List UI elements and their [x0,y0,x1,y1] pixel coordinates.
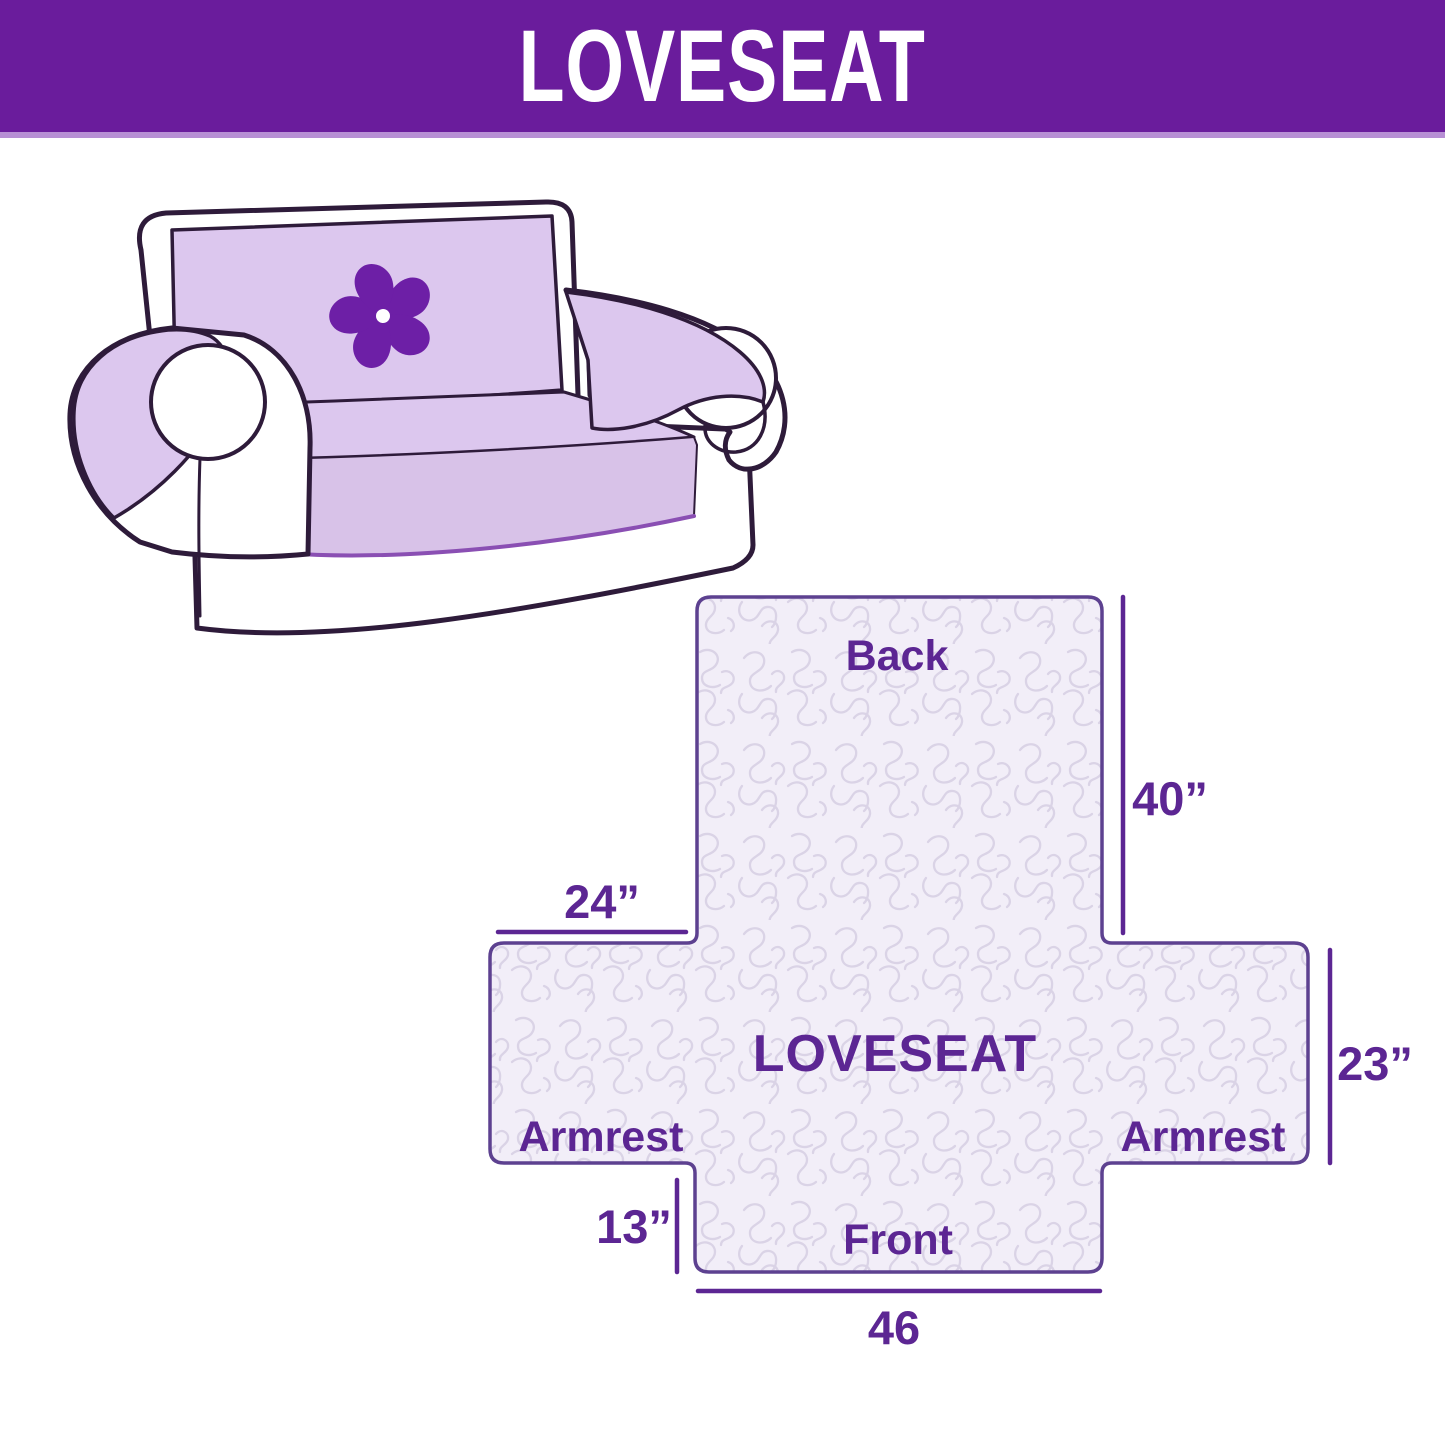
dim-23-label: 23” [1337,1037,1413,1090]
dim-13-label: 13” [596,1200,672,1253]
armrest-right-label: Armrest [1121,1113,1286,1161]
cover-diagram: Back 24” 40” LOVESEAT 23” Armrest Armres… [490,597,1413,1354]
diagram-center-label: LOVESEAT [753,1025,1037,1083]
back-label: Back [846,632,949,680]
scene-canvas: Back 24” 40” LOVESEAT 23” Armrest Armres… [0,0,1445,1445]
sofa-illustration [70,202,785,633]
page: LOVESEAT [0,0,1445,1445]
dim-24-label: 24” [564,875,640,928]
sofa-left-arm-seam [199,458,200,616]
dim-46-label: 46 [868,1301,920,1354]
front-label: Front [843,1216,953,1264]
dim-40-label: 40” [1132,772,1208,825]
diagram-cover-shape [490,597,1308,1272]
sofa-left-arm-scroll [151,345,265,459]
armrest-left-label: Armrest [519,1113,684,1161]
